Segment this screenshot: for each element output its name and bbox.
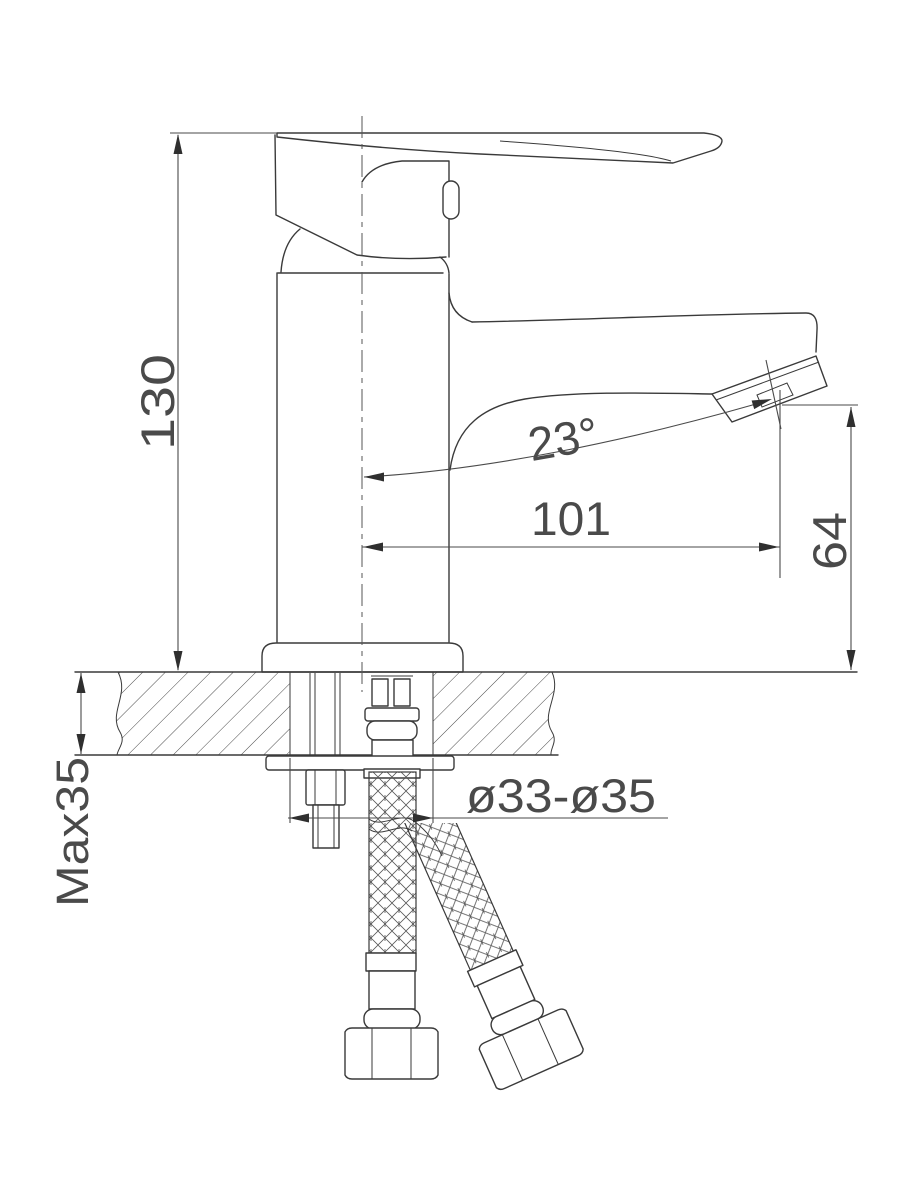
faucet-body xyxy=(277,229,449,642)
hose-connector xyxy=(365,676,419,758)
mounting-washer-plate xyxy=(266,756,454,770)
hose-fitting-left xyxy=(345,953,438,1079)
label-overall-height: 130 xyxy=(131,354,184,450)
technical-drawing-svg: 130 Max35 101 23° 64 ø33-ø35 xyxy=(0,0,900,1200)
label-stream-angle: 23° xyxy=(524,407,602,471)
dim-deck-thickness xyxy=(77,673,86,754)
label-deck-thickness: Max35 xyxy=(47,757,98,907)
faucet-outline xyxy=(262,133,827,672)
label-outlet-height: 64 xyxy=(803,512,856,570)
faucet-installation-drawing: 130 Max35 101 23° 64 ø33-ø35 xyxy=(0,0,900,1200)
dim-overall-height xyxy=(170,133,277,671)
label-hole-diameter: ø33-ø35 xyxy=(466,769,656,822)
supply-hose-left xyxy=(345,769,438,1079)
aerator xyxy=(712,356,827,422)
handle-side-button xyxy=(443,181,459,219)
mounting-nut xyxy=(306,770,345,848)
under-counter-assembly xyxy=(266,673,454,848)
threaded-stud xyxy=(310,673,340,756)
faucet-handle xyxy=(275,133,722,273)
label-spout-reach: 101 xyxy=(531,492,611,545)
hex-nut-left xyxy=(345,1028,438,1079)
countertop-section xyxy=(75,672,857,755)
